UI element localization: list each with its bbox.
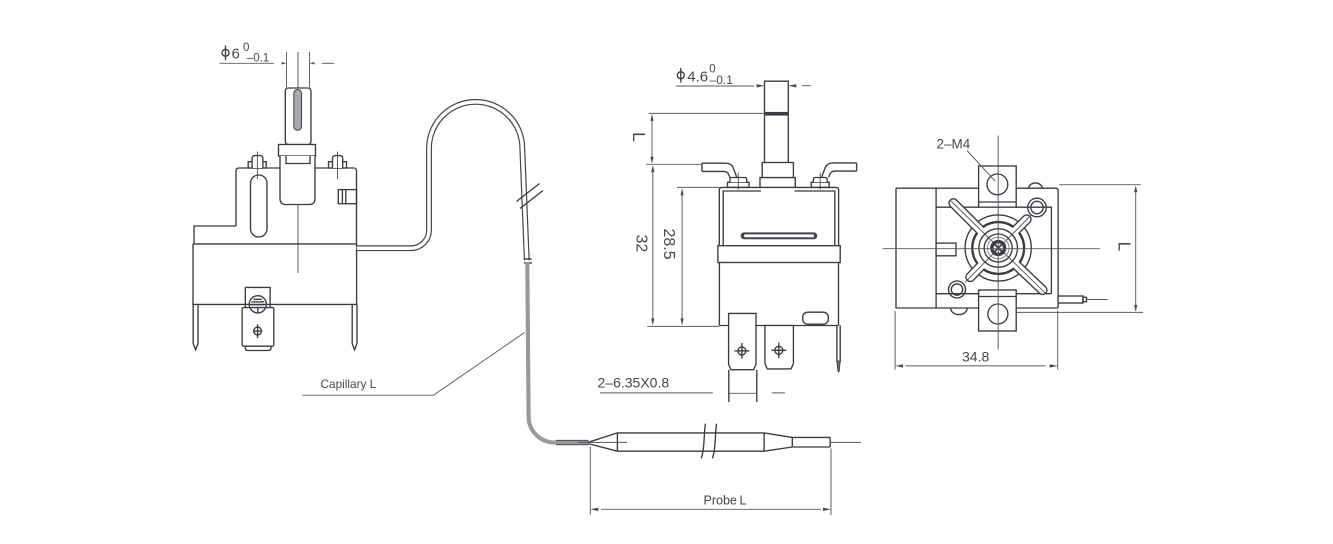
svg-text:–0.1: –0.1 [247, 53, 269, 65]
svg-text:2–M4: 2–M4 [937, 136, 971, 151]
svg-text:Capillary L: Capillary L [321, 377, 377, 391]
svg-text:34.8: 34.8 [962, 349, 989, 365]
svg-text:2–6.35X0.8: 2–6.35X0.8 [598, 375, 670, 391]
svg-text:4.6: 4.6 [687, 69, 708, 86]
svg-text:L: L [629, 132, 649, 142]
svg-text:–0.1: –0.1 [710, 73, 734, 87]
svg-text:28.5: 28.5 [660, 229, 677, 260]
svg-text:L: L [740, 494, 747, 508]
svg-text:L: L [1115, 242, 1135, 252]
svg-text:32: 32 [632, 235, 649, 253]
svg-text:Probe: Probe [704, 494, 737, 508]
svg-text:6: 6 [232, 46, 240, 63]
